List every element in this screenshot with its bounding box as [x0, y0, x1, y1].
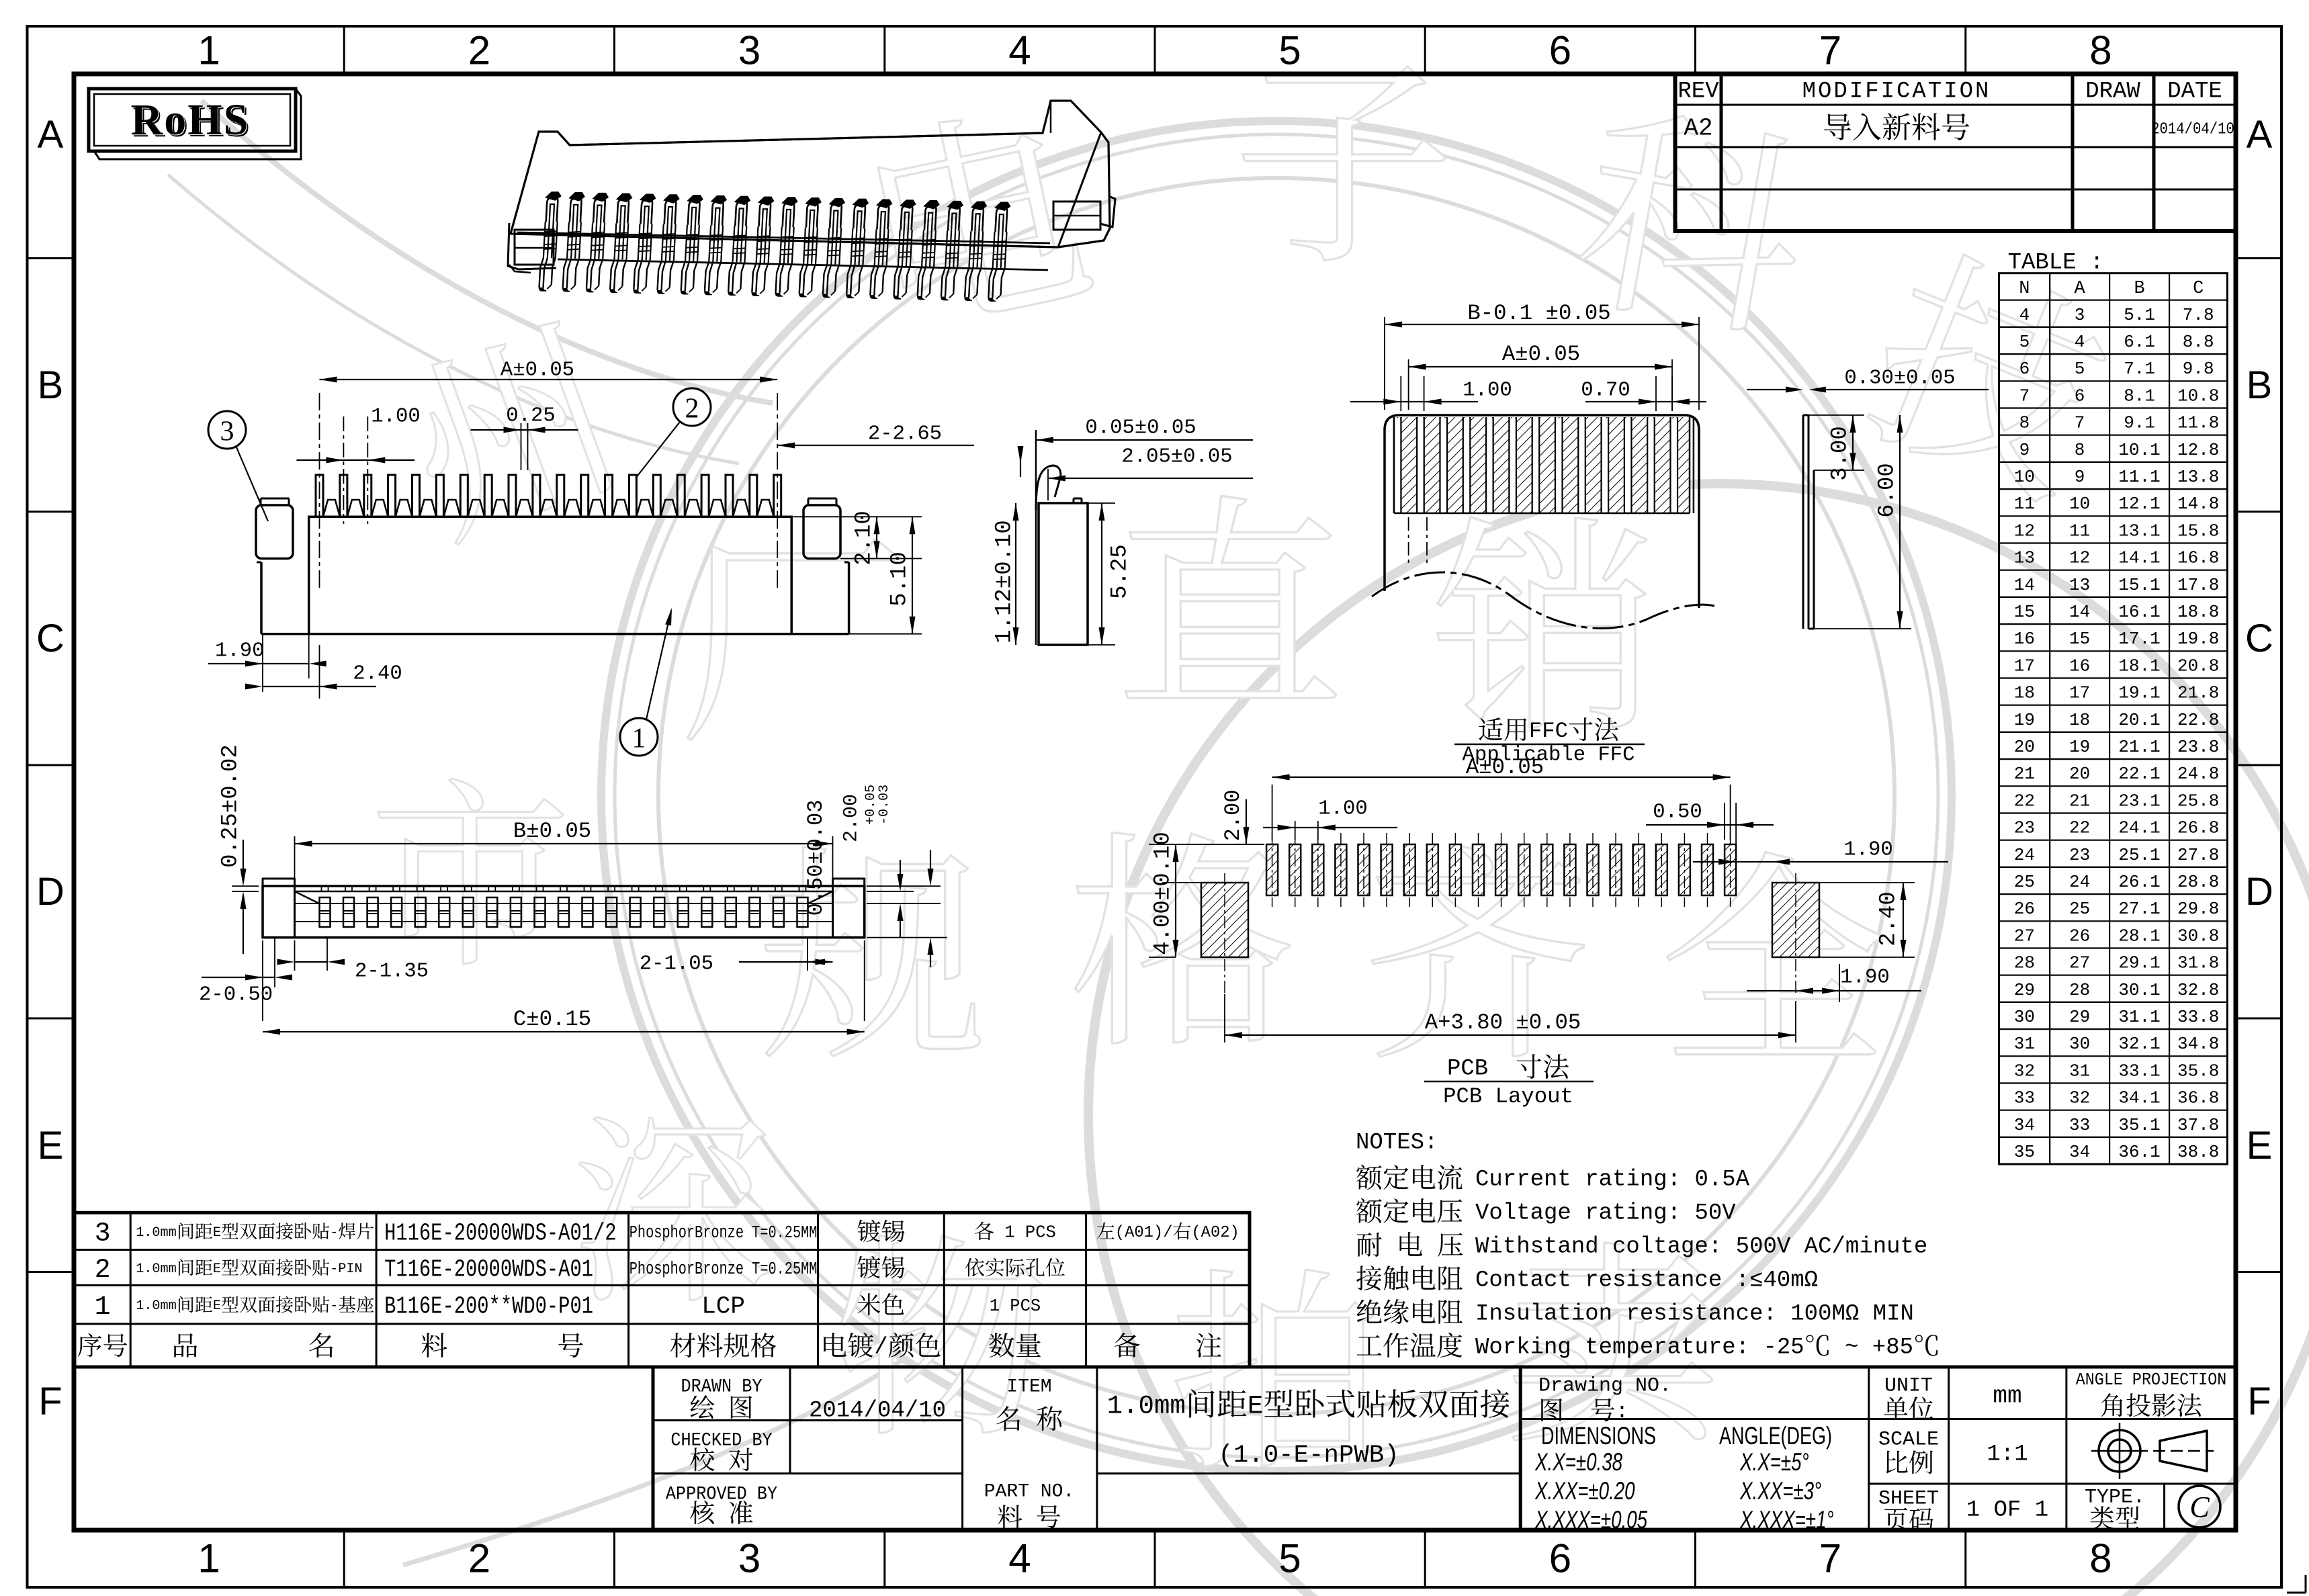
svg-text:30.8: 30.8 [2177, 926, 2219, 946]
svg-text:2-1.35: 2-1.35 [355, 961, 429, 983]
svg-text:Current rating: 0.5A: Current rating: 0.5A [1475, 1167, 1750, 1193]
svg-text:33: 33 [2069, 1115, 2090, 1135]
svg-text:18: 18 [2069, 710, 2090, 730]
svg-text:B: B [2134, 279, 2144, 299]
svg-text:C: C [2189, 1491, 2210, 1523]
svg-text:4.00±0.10: 4.00±0.10 [1151, 832, 1176, 955]
svg-text:A±0.05: A±0.05 [1502, 342, 1580, 367]
svg-text:Voltage rating: 50V: Voltage rating: 50V [1475, 1201, 1736, 1227]
svg-text:7: 7 [2075, 413, 2085, 433]
svg-text:2.40: 2.40 [1876, 891, 1902, 946]
svg-text:12: 12 [2014, 521, 2035, 541]
svg-text:18.8: 18.8 [2177, 602, 2219, 622]
svg-text:1.0mm: 1.0mm [136, 1261, 177, 1277]
svg-text:17.1: 17.1 [2118, 629, 2160, 649]
svg-text:ITEM: ITEM [1006, 1377, 1051, 1398]
svg-text:28.1: 28.1 [2118, 926, 2160, 946]
svg-text:1 PCS: 1 PCS [994, 1223, 1056, 1243]
svg-text:5: 5 [2075, 359, 2085, 379]
svg-text:29: 29 [2069, 1007, 2090, 1027]
svg-text:LCP: LCP [701, 1293, 745, 1321]
svg-text:E: E [213, 1298, 221, 1314]
svg-text:1.00: 1.00 [1318, 798, 1367, 821]
svg-text:-: - [330, 1225, 338, 1241]
svg-text:19.8: 19.8 [2177, 629, 2219, 649]
svg-text:5.10: 5.10 [887, 551, 913, 607]
svg-text:2-1.05: 2-1.05 [640, 953, 713, 976]
svg-text:F: F [38, 1380, 62, 1423]
svg-text:7: 7 [1819, 28, 1841, 73]
svg-text:9.1: 9.1 [2124, 413, 2155, 433]
svg-text:SHEET: SHEET [1878, 1487, 1939, 1510]
svg-text:C: C [36, 617, 64, 660]
svg-text:20: 20 [2014, 737, 2035, 757]
svg-text:~ +85: ~ +85 [1831, 1335, 1913, 1361]
svg-text:18.1: 18.1 [2118, 656, 2160, 676]
svg-text:25: 25 [2014, 872, 2035, 892]
svg-text:14.1: 14.1 [2118, 548, 2160, 568]
svg-text:20.1: 20.1 [2118, 710, 2160, 730]
svg-text:-0.03: -0.03 [877, 785, 892, 825]
svg-text:-: - [330, 1298, 338, 1314]
svg-text:5.25: 5.25 [1108, 544, 1133, 599]
svg-text:E: E [2247, 1124, 2273, 1167]
svg-text:19: 19 [2014, 710, 2035, 730]
svg-text:15: 15 [2014, 602, 2035, 622]
svg-text:26: 26 [2069, 926, 2090, 946]
svg-text:22.8: 22.8 [2177, 710, 2219, 730]
svg-text:2: 2 [468, 28, 490, 73]
svg-text:3: 3 [220, 416, 234, 447]
svg-text:RoHS: RoHS [131, 95, 250, 144]
svg-text:1.90: 1.90 [1843, 839, 1892, 862]
svg-text:34.1: 34.1 [2118, 1088, 2160, 1108]
svg-text:13.8: 13.8 [2177, 467, 2219, 487]
svg-text:1.0mm: 1.0mm [136, 1225, 177, 1241]
svg-text:25.1: 25.1 [2118, 845, 2160, 865]
svg-text:PhosphorBronze T=0.25MM: PhosphorBronze T=0.25MM [629, 1223, 818, 1243]
svg-text:32.1: 32.1 [2118, 1034, 2160, 1054]
svg-text:1.12±0.10: 1.12±0.10 [992, 520, 1018, 644]
svg-text:9: 9 [2075, 467, 2085, 487]
svg-text:DRAWN BY: DRAWN BY [681, 1376, 763, 1398]
svg-text:0.70: 0.70 [1581, 380, 1630, 402]
svg-text:7.8: 7.8 [2183, 305, 2214, 325]
svg-text:6: 6 [2075, 386, 2085, 406]
svg-text:38.8: 38.8 [2177, 1142, 2219, 1162]
svg-text:29: 29 [2014, 980, 2035, 1000]
svg-text:0.25±0.02: 0.25±0.02 [218, 744, 244, 868]
svg-text:26: 26 [2014, 899, 2035, 919]
svg-text:24.8: 24.8 [2177, 764, 2219, 784]
svg-text:1: 1 [198, 1536, 220, 1581]
svg-text:E: E [1248, 1391, 1263, 1421]
svg-text:4: 4 [1008, 28, 1031, 73]
svg-text:27: 27 [2069, 953, 2090, 973]
svg-text:3.00: 3.00 [1828, 426, 1854, 481]
svg-text:5: 5 [1278, 1536, 1301, 1581]
svg-text:5.1: 5.1 [2124, 305, 2155, 325]
svg-text:23.8: 23.8 [2177, 737, 2219, 757]
svg-text:2-0.50: 2-0.50 [199, 984, 273, 1007]
svg-text:12: 12 [2069, 548, 2090, 568]
svg-text:1.00: 1.00 [1463, 380, 1512, 402]
svg-text:1.90: 1.90 [215, 640, 264, 663]
svg-text:31: 31 [2014, 1034, 2035, 1054]
svg-text:1.0mm: 1.0mm [136, 1298, 177, 1314]
svg-text:(A02): (A02) [1191, 1224, 1239, 1242]
svg-text:X.XX=±3°: X.XX=±3° [1739, 1476, 1821, 1505]
svg-text:2-2.65: 2-2.65 [868, 423, 942, 446]
svg-text:0.25: 0.25 [506, 405, 555, 428]
svg-text:17.8: 17.8 [2177, 575, 2219, 595]
svg-text:35.8: 35.8 [2177, 1061, 2219, 1081]
svg-text:33.1: 33.1 [2118, 1061, 2160, 1081]
svg-text:8: 8 [2089, 28, 2111, 73]
svg-text:16: 16 [2014, 629, 2035, 649]
svg-text:A±0.05: A±0.05 [1466, 755, 1544, 780]
svg-text:13: 13 [2069, 575, 2090, 595]
svg-text:29.8: 29.8 [2177, 899, 2219, 919]
svg-text:Withstand coltage: 500V AC/min: Withstand coltage: 500V AC/minute [1475, 1235, 1927, 1260]
svg-text:1: 1 [198, 28, 220, 73]
svg-text:9.8: 9.8 [2183, 359, 2214, 379]
svg-text:A: A [2074, 279, 2085, 299]
svg-text:C: C [2245, 617, 2273, 660]
svg-text:1: 1 [632, 723, 646, 754]
svg-text:20.8: 20.8 [2177, 656, 2219, 676]
svg-text:28: 28 [2069, 980, 2090, 1000]
svg-text:27: 27 [2014, 926, 2035, 946]
svg-text:34.8: 34.8 [2177, 1034, 2219, 1054]
svg-text:26.1: 26.1 [2118, 872, 2160, 892]
svg-text:8: 8 [2075, 440, 2085, 460]
svg-text:A±0.05: A±0.05 [500, 359, 574, 382]
svg-text:8: 8 [2019, 413, 2030, 433]
svg-text:36.8: 36.8 [2177, 1088, 2219, 1108]
svg-text:C±0.15: C±0.15 [513, 1007, 591, 1032]
svg-text:21: 21 [2069, 791, 2090, 811]
svg-text:28: 28 [2014, 953, 2035, 973]
svg-text:X.X=±5°: X.X=±5° [1739, 1448, 1809, 1476]
svg-text:22.1: 22.1 [2118, 764, 2160, 784]
svg-text:DIMENSIONS: DIMENSIONS [1541, 1422, 1656, 1450]
svg-text:2: 2 [468, 1536, 490, 1581]
svg-text:/: / [874, 1335, 887, 1361]
svg-text:TABLE :: TABLE : [2008, 251, 2104, 276]
svg-text:TYPE.: TYPE. [2085, 1486, 2145, 1509]
svg-text:PCB: PCB [1447, 1057, 1516, 1082]
svg-text:CHECKED BY: CHECKED BY [670, 1430, 772, 1452]
svg-text:5: 5 [2019, 332, 2030, 352]
svg-text:2.00: 2.00 [840, 794, 863, 842]
svg-text:1.0mm: 1.0mm [1107, 1391, 1186, 1421]
svg-text:X.X=±0.38: X.X=±0.38 [1534, 1448, 1622, 1476]
svg-text:6: 6 [2019, 359, 2030, 379]
svg-text:15: 15 [2069, 629, 2090, 649]
svg-text::: : [1616, 1399, 1628, 1424]
svg-text:E: E [38, 1124, 64, 1167]
svg-text:4: 4 [2075, 332, 2085, 352]
svg-text:12.8: 12.8 [2177, 440, 2219, 460]
svg-text:2.10: 2.10 [852, 511, 877, 566]
svg-text:2014/04/10: 2014/04/10 [2151, 120, 2234, 138]
svg-text:REV: REV [1678, 79, 1719, 105]
svg-text:27.8: 27.8 [2177, 845, 2219, 865]
svg-text:24: 24 [2014, 845, 2035, 865]
svg-text:29.1: 29.1 [2118, 953, 2160, 973]
svg-text:14: 14 [2069, 602, 2090, 622]
svg-text:33: 33 [2014, 1088, 2035, 1108]
svg-text:2.40: 2.40 [353, 663, 402, 686]
svg-text:2: 2 [95, 1255, 111, 1286]
svg-text:B: B [38, 363, 64, 407]
svg-text:31.1: 31.1 [2118, 1007, 2160, 1027]
svg-text:(A01)/: (A01)/ [1115, 1224, 1173, 1242]
svg-text:21.8: 21.8 [2177, 683, 2219, 703]
svg-text:X.XXX=±1°: X.XXX=±1° [1739, 1505, 1833, 1534]
svg-text:23: 23 [2014, 818, 2035, 838]
svg-text:7: 7 [1819, 1536, 1841, 1581]
svg-text:C: C [2193, 279, 2204, 299]
svg-text:19: 19 [2069, 737, 2090, 757]
svg-text:3: 3 [738, 1536, 760, 1581]
svg-text:mm: mm [1993, 1382, 2021, 1409]
svg-text:7.1: 7.1 [2124, 359, 2155, 379]
svg-text:24.1: 24.1 [2118, 818, 2160, 838]
svg-text:10.8: 10.8 [2177, 386, 2219, 406]
svg-text:0.50: 0.50 [1653, 801, 1702, 824]
svg-text:-PIN: -PIN [330, 1261, 362, 1277]
svg-text:34: 34 [2069, 1142, 2090, 1162]
svg-text:B116E-200**WD0-P01: B116E-200**WD0-P01 [384, 1293, 593, 1321]
svg-text:PCB Layout: PCB Layout [1443, 1084, 1573, 1109]
svg-text:2.05±0.05: 2.05±0.05 [1121, 446, 1232, 469]
svg-text:33.8: 33.8 [2177, 1007, 2219, 1027]
svg-text:15.8: 15.8 [2177, 521, 2219, 541]
svg-text:Contact resistance :≤40mΩ: Contact resistance :≤40mΩ [1475, 1268, 1818, 1294]
svg-text:E: E [213, 1261, 221, 1277]
svg-text:10: 10 [2014, 467, 2035, 487]
svg-text:0.30±0.05: 0.30±0.05 [1844, 367, 1955, 390]
svg-text:DRAW: DRAW [2085, 79, 2140, 105]
svg-text:15.1: 15.1 [2118, 575, 2160, 595]
svg-text:31: 31 [2069, 1061, 2090, 1081]
svg-text:32: 32 [2069, 1088, 2090, 1108]
svg-text:1 OF 1: 1 OF 1 [1966, 1498, 2048, 1523]
svg-text:9: 9 [2019, 440, 2030, 460]
svg-text:D: D [36, 870, 64, 914]
svg-text:16.8: 16.8 [2177, 548, 2219, 568]
svg-text:A: A [2247, 113, 2273, 157]
svg-text:Insulation resistance: 100MΩ M: Insulation resistance: 100MΩ MIN [1475, 1302, 1914, 1327]
svg-text:13.1: 13.1 [2118, 521, 2160, 541]
svg-text:11: 11 [2014, 494, 2035, 514]
svg-text:30.1: 30.1 [2118, 980, 2160, 1000]
svg-text:5: 5 [1278, 28, 1301, 73]
svg-text:27.1: 27.1 [2118, 899, 2160, 919]
svg-text:25.8: 25.8 [2177, 791, 2219, 811]
svg-text:17: 17 [2069, 683, 2090, 703]
svg-text:16: 16 [2069, 656, 2090, 676]
svg-text:T116E-20000WDS-A01: T116E-20000WDS-A01 [384, 1256, 593, 1284]
svg-text:11.8: 11.8 [2177, 413, 2219, 433]
svg-text:12.1: 12.1 [2118, 494, 2160, 514]
svg-text:14.8: 14.8 [2177, 494, 2219, 514]
svg-text:B±0.05: B±0.05 [513, 819, 591, 844]
svg-text:10.1: 10.1 [2118, 440, 2160, 460]
svg-text:D: D [2245, 870, 2273, 914]
svg-text:8: 8 [2089, 1536, 2111, 1581]
svg-text:7: 7 [2019, 386, 2030, 406]
svg-text:B: B [2247, 363, 2273, 407]
svg-text:35.1: 35.1 [2118, 1115, 2160, 1135]
svg-text:34: 34 [2014, 1115, 2035, 1135]
svg-text:28.8: 28.8 [2177, 872, 2219, 892]
svg-text:PhosphorBronze T=0.25MM: PhosphorBronze T=0.25MM [629, 1259, 818, 1279]
svg-text:DATE: DATE [2167, 79, 2222, 105]
svg-text:11: 11 [2069, 521, 2090, 541]
svg-text:20: 20 [2069, 764, 2090, 784]
svg-text:1: 1 [95, 1292, 111, 1323]
svg-text:Working temperature: -25: Working temperature: -25 [1475, 1335, 1804, 1361]
svg-text:2: 2 [685, 394, 699, 425]
svg-text:11.1: 11.1 [2118, 467, 2160, 487]
svg-text:32.8: 32.8 [2177, 980, 2219, 1000]
svg-text:ANGLE PROJECTION: ANGLE PROJECTION [2076, 1370, 2227, 1390]
svg-text:19.1: 19.1 [2118, 683, 2160, 703]
svg-text:0.05±0.05: 0.05±0.05 [1085, 417, 1196, 440]
svg-text:36.1: 36.1 [2118, 1142, 2160, 1162]
svg-text:6: 6 [1549, 1536, 1571, 1581]
svg-text:25: 25 [2069, 899, 2090, 919]
svg-text:1.90: 1.90 [1840, 967, 1889, 989]
svg-text:16.1: 16.1 [2118, 602, 2160, 622]
svg-text:13: 13 [2014, 548, 2035, 568]
svg-text:A: A [38, 113, 64, 157]
svg-text:PART NO.: PART NO. [984, 1482, 1074, 1503]
svg-text:E: E [213, 1225, 221, 1241]
svg-text:1 PCS: 1 PCS [990, 1296, 1041, 1316]
svg-text:6.1: 6.1 [2124, 332, 2155, 352]
svg-text:3: 3 [95, 1219, 111, 1249]
svg-text:X.XX=±0.20: X.XX=±0.20 [1534, 1476, 1635, 1505]
svg-text:B-0.1 ±0.05: B-0.1 ±0.05 [1467, 301, 1610, 326]
svg-text:SCALE: SCALE [1878, 1428, 1939, 1451]
svg-text:A+3.80 ±0.05: A+3.80 ±0.05 [1425, 1010, 1581, 1035]
svg-text:23: 23 [2069, 845, 2090, 865]
svg-text:8.1: 8.1 [2124, 386, 2155, 406]
svg-text:H116E-20000WDS-A01/2: H116E-20000WDS-A01/2 [384, 1219, 616, 1247]
svg-text:3: 3 [2075, 305, 2085, 325]
svg-text:32: 32 [2014, 1061, 2035, 1081]
svg-text:A2: A2 [1684, 114, 1712, 142]
svg-text:X.XXX=±0.05: X.XXX=±0.05 [1534, 1505, 1648, 1534]
svg-text:4: 4 [1008, 1536, 1031, 1581]
svg-text:3: 3 [738, 28, 760, 73]
svg-text:F: F [2247, 1380, 2271, 1423]
svg-text:6.00: 6.00 [1875, 463, 1901, 518]
svg-text:26.8: 26.8 [2177, 818, 2219, 838]
svg-text:10: 10 [2069, 494, 2090, 514]
svg-text:N: N [2019, 279, 2030, 299]
svg-text:4: 4 [2019, 305, 2030, 325]
svg-text:MODIFICATION: MODIFICATION [1802, 79, 1991, 105]
svg-text:22: 22 [2014, 791, 2035, 811]
svg-text:35: 35 [2014, 1142, 2035, 1162]
svg-text:Drawing NO.: Drawing NO. [1538, 1374, 1671, 1397]
svg-text:14: 14 [2014, 575, 2035, 595]
svg-text:17: 17 [2014, 656, 2035, 676]
svg-text:30: 30 [2014, 1007, 2035, 1027]
svg-text:FFC: FFC [1529, 719, 1568, 744]
svg-text:22: 22 [2069, 818, 2090, 838]
svg-text:24: 24 [2069, 872, 2090, 892]
svg-text:ANGLE(DEG): ANGLE(DEG) [1719, 1422, 1832, 1450]
svg-text:2.00: 2.00 [1221, 790, 1246, 842]
svg-text:6: 6 [1549, 28, 1571, 73]
svg-text:0.50±0.03: 0.50±0.03 [803, 800, 828, 916]
svg-text:1.00: 1.00 [371, 406, 420, 429]
svg-text:21.1: 21.1 [2118, 737, 2160, 757]
svg-text:21: 21 [2014, 764, 2035, 784]
svg-text:37.8: 37.8 [2177, 1115, 2219, 1135]
svg-text:1:1: 1:1 [1987, 1442, 2028, 1468]
svg-text:(1.0-E-nPWB): (1.0-E-nPWB) [1218, 1442, 1399, 1470]
svg-text:23.1: 23.1 [2118, 791, 2160, 811]
svg-text:18: 18 [2014, 683, 2035, 703]
svg-text:NOTES:: NOTES: [1356, 1130, 1438, 1156]
svg-text:2014/04/10: 2014/04/10 [809, 1399, 946, 1424]
svg-text:8.8: 8.8 [2183, 332, 2214, 352]
svg-text:30: 30 [2069, 1034, 2090, 1054]
svg-text:UNIT: UNIT [1884, 1374, 1933, 1397]
svg-text:31.8: 31.8 [2177, 953, 2219, 973]
